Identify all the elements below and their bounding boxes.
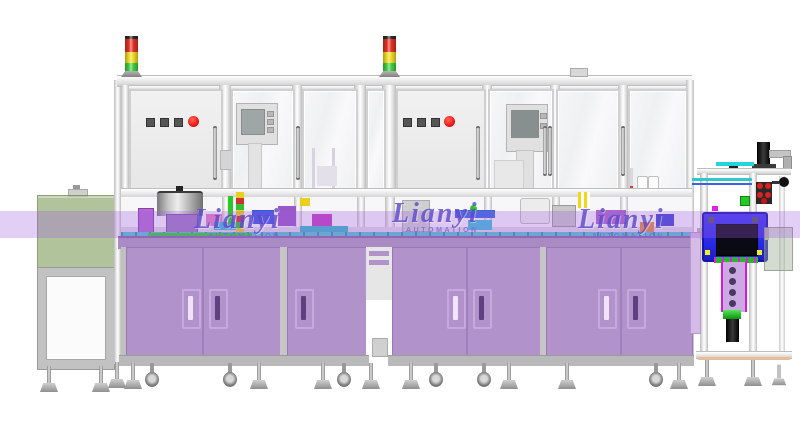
line-foot bbox=[314, 363, 332, 389]
line-foot bbox=[250, 363, 268, 389]
right-machine-foot bbox=[772, 365, 786, 386]
panel-button-red bbox=[188, 116, 199, 127]
door-handle bbox=[621, 128, 625, 174]
line-caster bbox=[222, 363, 238, 389]
panel-button-dark bbox=[160, 118, 169, 127]
tower-green-light bbox=[125, 63, 138, 72]
knob-stem bbox=[772, 181, 779, 184]
cabinet-handle bbox=[295, 289, 314, 329]
door-handle bbox=[548, 128, 552, 174]
module2-hmi-unit bbox=[506, 104, 548, 152]
fixture-dot bbox=[470, 205, 477, 212]
panel-button-dark bbox=[417, 118, 426, 127]
line-caster bbox=[476, 363, 492, 389]
panel-button-dark bbox=[403, 118, 412, 127]
module1-control-door bbox=[129, 89, 223, 193]
fixture-block bbox=[300, 198, 310, 206]
hmi-button bbox=[267, 127, 274, 133]
green-chip bbox=[740, 196, 750, 206]
door-handle bbox=[213, 128, 217, 178]
hmi-pedestal bbox=[248, 143, 262, 189]
cabinet-gap bbox=[280, 247, 287, 355]
line-caster bbox=[336, 363, 352, 389]
fixture-block bbox=[596, 210, 626, 224]
cabinet-handle bbox=[209, 289, 228, 329]
feeder-bowl bbox=[157, 191, 203, 216]
left-machine-top-nub bbox=[73, 185, 80, 189]
fixture-block bbox=[252, 210, 274, 224]
fixture-column bbox=[236, 192, 244, 232]
right-machine-foot bbox=[744, 360, 762, 386]
panel-button-dark bbox=[174, 118, 183, 127]
module2-roof-tab bbox=[570, 68, 588, 77]
cabinet-handle bbox=[447, 289, 466, 329]
line-left-sidewall bbox=[114, 80, 121, 364]
cabinet-handle bbox=[627, 289, 646, 329]
motor-red-pulley bbox=[757, 183, 763, 189]
behind-glass-rod bbox=[312, 148, 315, 188]
teal-guide bbox=[692, 178, 752, 181]
fixture-block bbox=[552, 205, 576, 227]
door-handle bbox=[543, 128, 547, 174]
right-machine-foot bbox=[698, 360, 716, 386]
right-machine-side-panel bbox=[690, 232, 701, 334]
cabinet-handle bbox=[473, 289, 492, 329]
panel-button-red bbox=[444, 116, 455, 127]
tower-yellow-light bbox=[125, 52, 138, 63]
hmi-screen bbox=[241, 109, 265, 135]
box-yellow-dot bbox=[757, 250, 762, 255]
line-foot bbox=[362, 363, 380, 389]
module2-control-door bbox=[396, 89, 486, 193]
blue-guide bbox=[692, 183, 752, 185]
hmi-screen bbox=[511, 110, 539, 138]
panel-button-dark bbox=[431, 118, 440, 127]
hmi-button bbox=[267, 111, 274, 117]
deck-green-line bbox=[148, 233, 252, 236]
behind-glass-block bbox=[317, 166, 337, 186]
fixture-block bbox=[278, 206, 296, 226]
line-foot bbox=[670, 363, 688, 389]
column-green-cap bbox=[723, 310, 741, 319]
signal-tower-2 bbox=[383, 36, 396, 75]
module1-hmi-unit bbox=[236, 103, 278, 145]
tower-yellow-light bbox=[383, 52, 396, 63]
connector-bracket bbox=[372, 338, 388, 357]
connector-stripe bbox=[369, 260, 389, 265]
magenta-chip bbox=[712, 206, 718, 211]
hmi-button bbox=[540, 113, 547, 119]
signal-tower-1 bbox=[125, 36, 138, 75]
tower-green-light bbox=[383, 63, 396, 72]
fixture-block bbox=[312, 214, 332, 226]
door-handle bbox=[476, 128, 480, 178]
box-corner-block bbox=[752, 217, 758, 223]
left-machine-green-cover bbox=[37, 195, 115, 269]
line-caster bbox=[648, 363, 664, 389]
cabinet-handle bbox=[182, 289, 201, 329]
hmi-button bbox=[267, 119, 274, 125]
module1-cabinet-a bbox=[126, 247, 282, 357]
nozzle-cylinder bbox=[726, 319, 739, 342]
line-foot bbox=[124, 363, 142, 389]
knob bbox=[779, 177, 789, 187]
line-foot bbox=[558, 363, 576, 389]
line-foot bbox=[500, 363, 518, 389]
fixture-block bbox=[402, 200, 430, 232]
line-foot bbox=[402, 363, 420, 389]
panel-button-dark bbox=[146, 118, 155, 127]
module2-cabinet-d bbox=[546, 247, 693, 357]
module2-right-window bbox=[556, 89, 620, 193]
fixture-block bbox=[468, 220, 492, 230]
behind-glass-block bbox=[494, 160, 524, 190]
translucent-cover bbox=[764, 227, 793, 271]
right-machine-table bbox=[697, 168, 791, 175]
fixture-block bbox=[656, 214, 674, 226]
left-machine-cabinet-panel bbox=[46, 276, 106, 360]
fixture-block bbox=[228, 196, 233, 224]
module1-cabinet-b bbox=[287, 247, 368, 357]
module2-cabinet-c bbox=[392, 247, 542, 357]
box-yellow-dot bbox=[705, 250, 710, 255]
left-machine-foot bbox=[40, 366, 58, 392]
fixture-block bbox=[520, 198, 550, 224]
tower-red-light bbox=[125, 39, 138, 52]
line-caster bbox=[144, 363, 160, 389]
column-hole bbox=[729, 267, 736, 274]
tower-red-light bbox=[383, 39, 396, 52]
connector-stripe bbox=[369, 251, 389, 256]
door-handle bbox=[296, 128, 300, 178]
box-corner-block bbox=[708, 217, 714, 223]
right-machine-post bbox=[700, 173, 708, 355]
automation-line-render: Lianyi AUTOMATION Lianyi AUTOMATION Lian… bbox=[0, 0, 800, 438]
fixture-block bbox=[640, 222, 654, 232]
cabinet-handle bbox=[598, 289, 617, 329]
line-caster bbox=[428, 363, 444, 389]
module1-narrow-window bbox=[366, 89, 386, 193]
box-opening bbox=[716, 224, 758, 256]
fixture-column bbox=[578, 192, 590, 208]
